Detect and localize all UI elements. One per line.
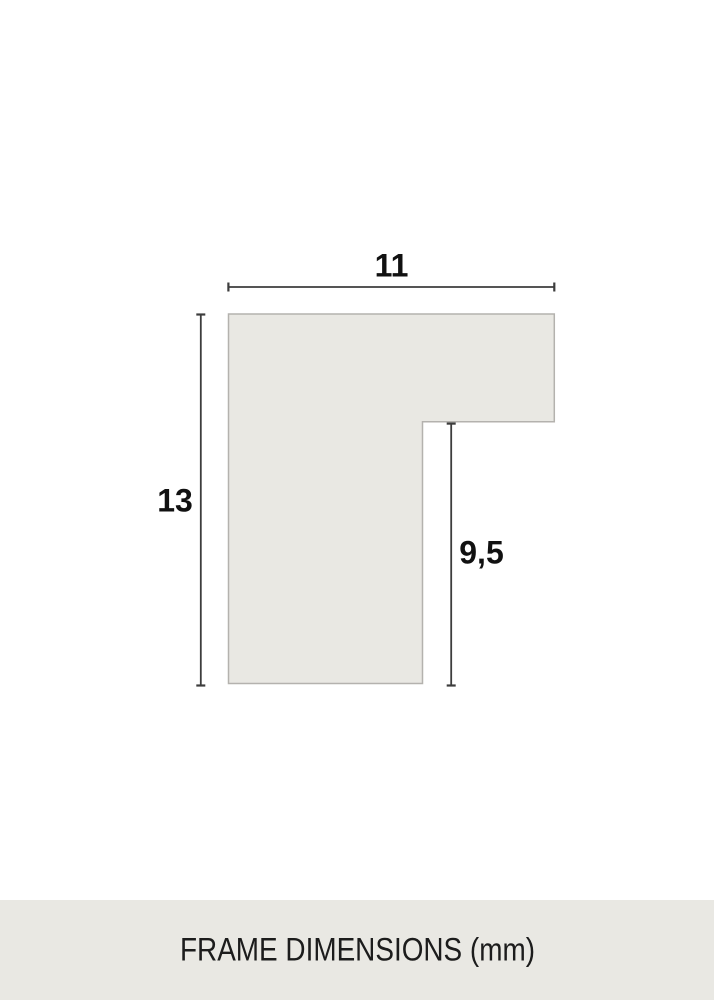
svg-text:9,5: 9,5 bbox=[459, 535, 503, 571]
svg-text:FRAME DIMENSIONS (mm): FRAME DIMENSIONS (mm) bbox=[180, 932, 535, 968]
svg-text:13: 13 bbox=[157, 483, 193, 519]
svg-text:11: 11 bbox=[375, 247, 409, 283]
